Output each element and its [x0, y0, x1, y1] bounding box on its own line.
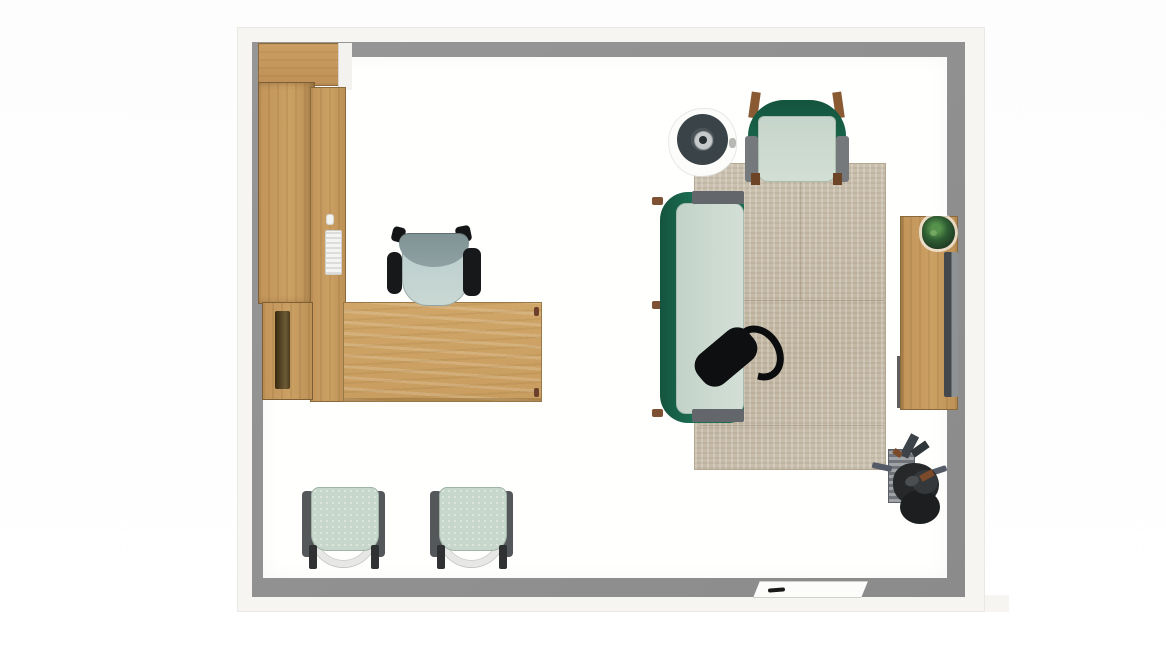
- desk-hinge: [534, 388, 539, 397]
- sofa-armrest-top: [692, 191, 744, 204]
- potted-plant[interactable]: [922, 216, 955, 249]
- chair-leg: [499, 545, 507, 569]
- workstation-chair-seat: [900, 490, 940, 524]
- chair-armrest-left: [387, 252, 402, 294]
- whiteboard-marker: [768, 587, 785, 592]
- wardrobe-cabinet-tall[interactable]: [258, 82, 315, 304]
- guest-chair-1[interactable]: [302, 487, 386, 571]
- wall-screen[interactable]: [944, 252, 958, 397]
- armchair-cushion: [758, 116, 836, 182]
- room-outer-wall-trim-extension: [985, 595, 1009, 612]
- chair-leg: [309, 545, 317, 569]
- sofa-armrest-bottom: [692, 409, 744, 422]
- chair-leg: [437, 545, 445, 569]
- wardrobe-cabinet-upper[interactable]: [258, 43, 340, 86]
- guest-chair-2[interactable]: [430, 487, 514, 571]
- armchair-leg: [833, 173, 842, 185]
- desk-hinge: [534, 307, 539, 316]
- chair-seat: [311, 487, 379, 551]
- chair-leg: [371, 545, 379, 569]
- sofa-leg: [652, 409, 663, 417]
- chair-seat: [439, 487, 507, 551]
- desk-surface[interactable]: [343, 302, 542, 402]
- whiteboard[interactable]: [753, 581, 868, 598]
- wardrobe-cabinet-trim: [338, 43, 352, 90]
- black-lounge-chair[interactable]: [690, 322, 776, 396]
- chair-armrest-right: [463, 248, 481, 296]
- side-table-detail: [729, 138, 736, 148]
- rug-seam: [700, 425, 884, 426]
- cabinet-small-label: [327, 215, 333, 224]
- armchair-leg: [751, 173, 760, 185]
- floor-plan-canvas: [0, 0, 1166, 656]
- desk-task-chair[interactable]: [387, 226, 481, 306]
- lower-cabinet-slot: [275, 311, 290, 389]
- sofa-leg: [652, 197, 663, 205]
- side-table-hub-center: [699, 136, 707, 144]
- cabinet-paper-label: [325, 230, 342, 275]
- green-armchair[interactable]: [745, 92, 849, 185]
